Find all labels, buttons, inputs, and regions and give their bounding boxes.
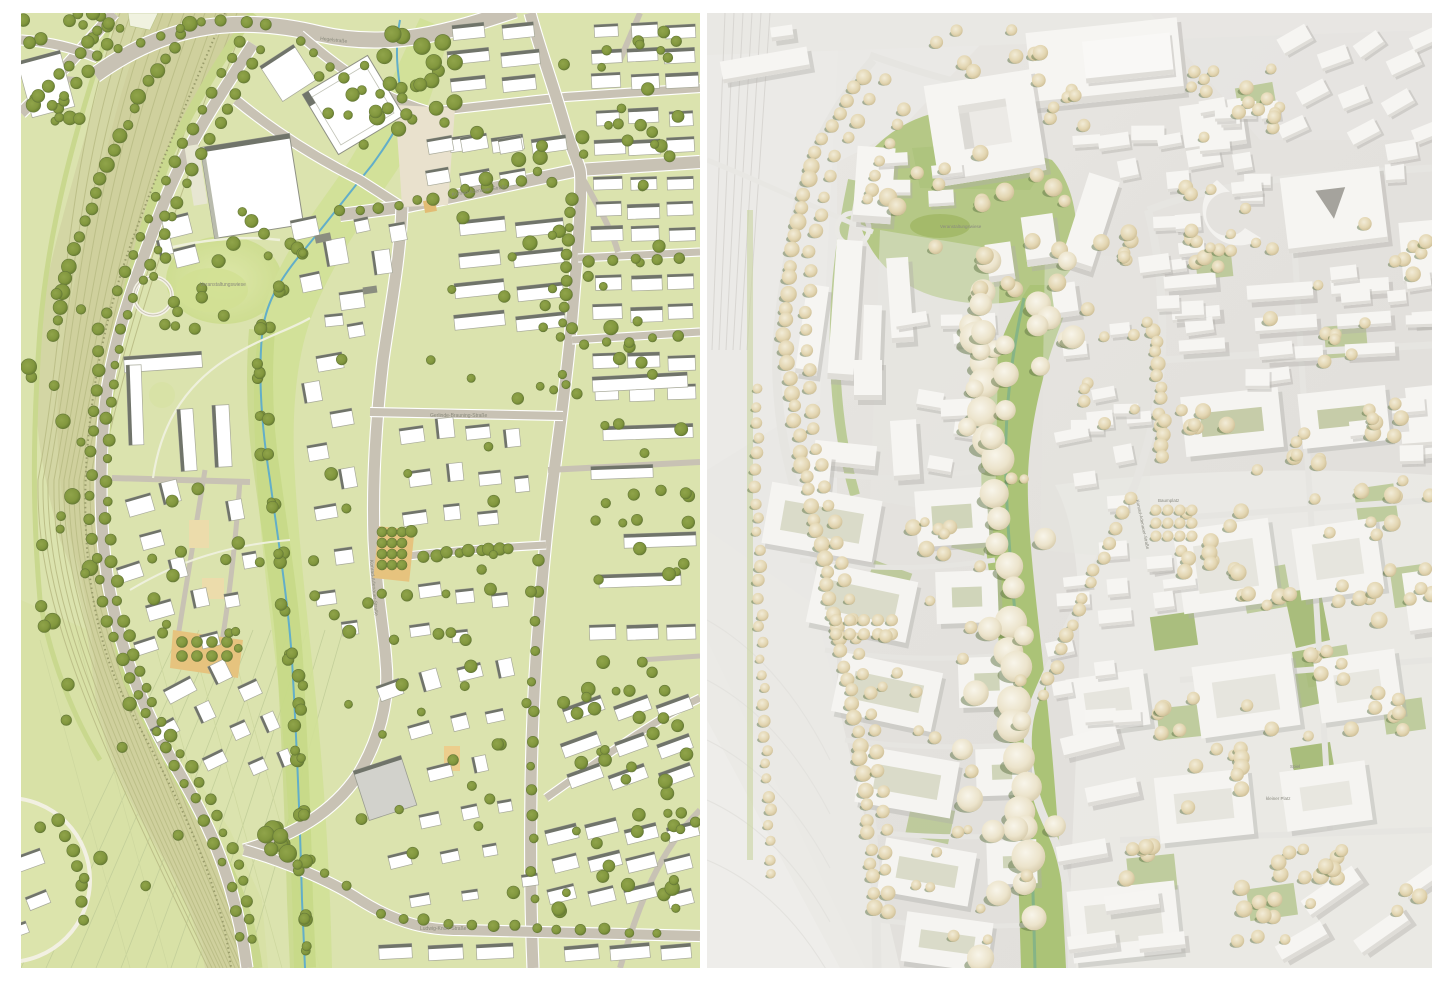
svg-text:Spiel: Spiel [1290, 764, 1300, 769]
svg-text:Veranstaltungswiese: Veranstaltungswiese [200, 282, 246, 288]
svg-text:Gerlinde-Brauning-Straße: Gerlinde-Brauning-Straße [430, 413, 487, 419]
svg-text:kleiner Platz: kleiner Platz [1266, 796, 1291, 801]
svg-text:Baumplatz: Baumplatz [1158, 498, 1180, 503]
svg-text:Ludwig-Knorr-Straße: Ludwig-Knorr-Straße [420, 926, 467, 932]
svg-text:Veranstaltungswiese: Veranstaltungswiese [940, 224, 982, 229]
